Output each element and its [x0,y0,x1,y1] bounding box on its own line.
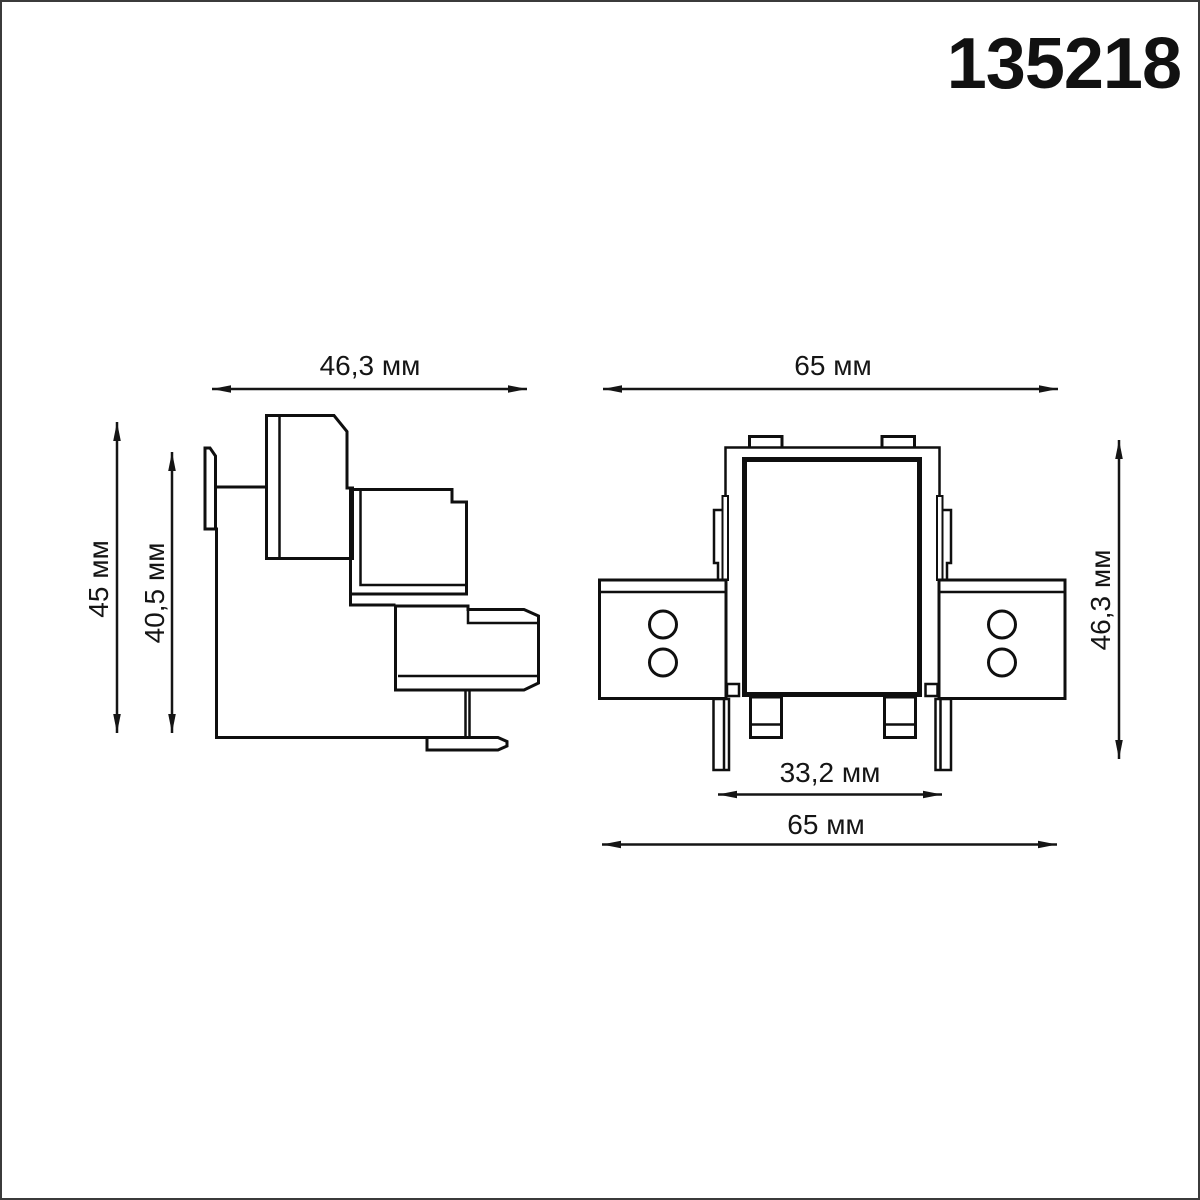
front-left-inner-leg [751,697,782,738]
side-view-drawing [205,416,539,751]
side-foot [427,738,507,751]
front-inner-width-dimension-label: 33,2 мм [780,757,881,788]
front-right-wing-hole-top [989,611,1016,638]
front-left-wing-hole-top [650,611,677,638]
front-view-drawing [600,437,1066,771]
side-inner-height-dimension-label: 40,5 мм [139,543,170,644]
technical-drawing: 46,3 мм 45 мм 40,5 мм [2,2,1198,1198]
front-height-dimension-label: 46,3 мм [1085,550,1116,651]
front-right-wing-hole-bottom [989,649,1016,676]
side-step-line [351,594,396,605]
side-middle-block-inner-lines [361,490,467,586]
front-left-outer-leg [714,699,730,770]
side-width-dimension-label: 46,3 мм [320,350,421,381]
side-lower-block-inner-lines [398,610,539,677]
front-right-outer-leg [936,699,952,770]
front-right-inner-leg [885,697,916,738]
front-right-clip-tongue [943,510,952,580]
front-right-joint-box [926,684,938,696]
side-outer-height-dimension-label: 45 мм [83,540,114,617]
front-top-width-dimension-label: 65 мм [794,350,871,381]
side-mount-tab [205,448,216,529]
front-left-wing-hole-bottom [650,649,677,676]
front-outer-outline [726,448,940,496]
side-middle-block [351,490,467,595]
front-left-clip-bar [723,496,729,580]
front-bottom-width-dimension-label: 65 мм [787,809,864,840]
front-left-clip-tongue [714,510,723,580]
side-stem [466,690,470,738]
front-body-rect [745,460,920,695]
front-right-clip-bar [937,496,943,580]
front-left-joint-box [727,684,739,696]
drawing-page: 135218 46,3 мм 45 мм [0,0,1200,1200]
front-top-tabs [750,437,915,448]
